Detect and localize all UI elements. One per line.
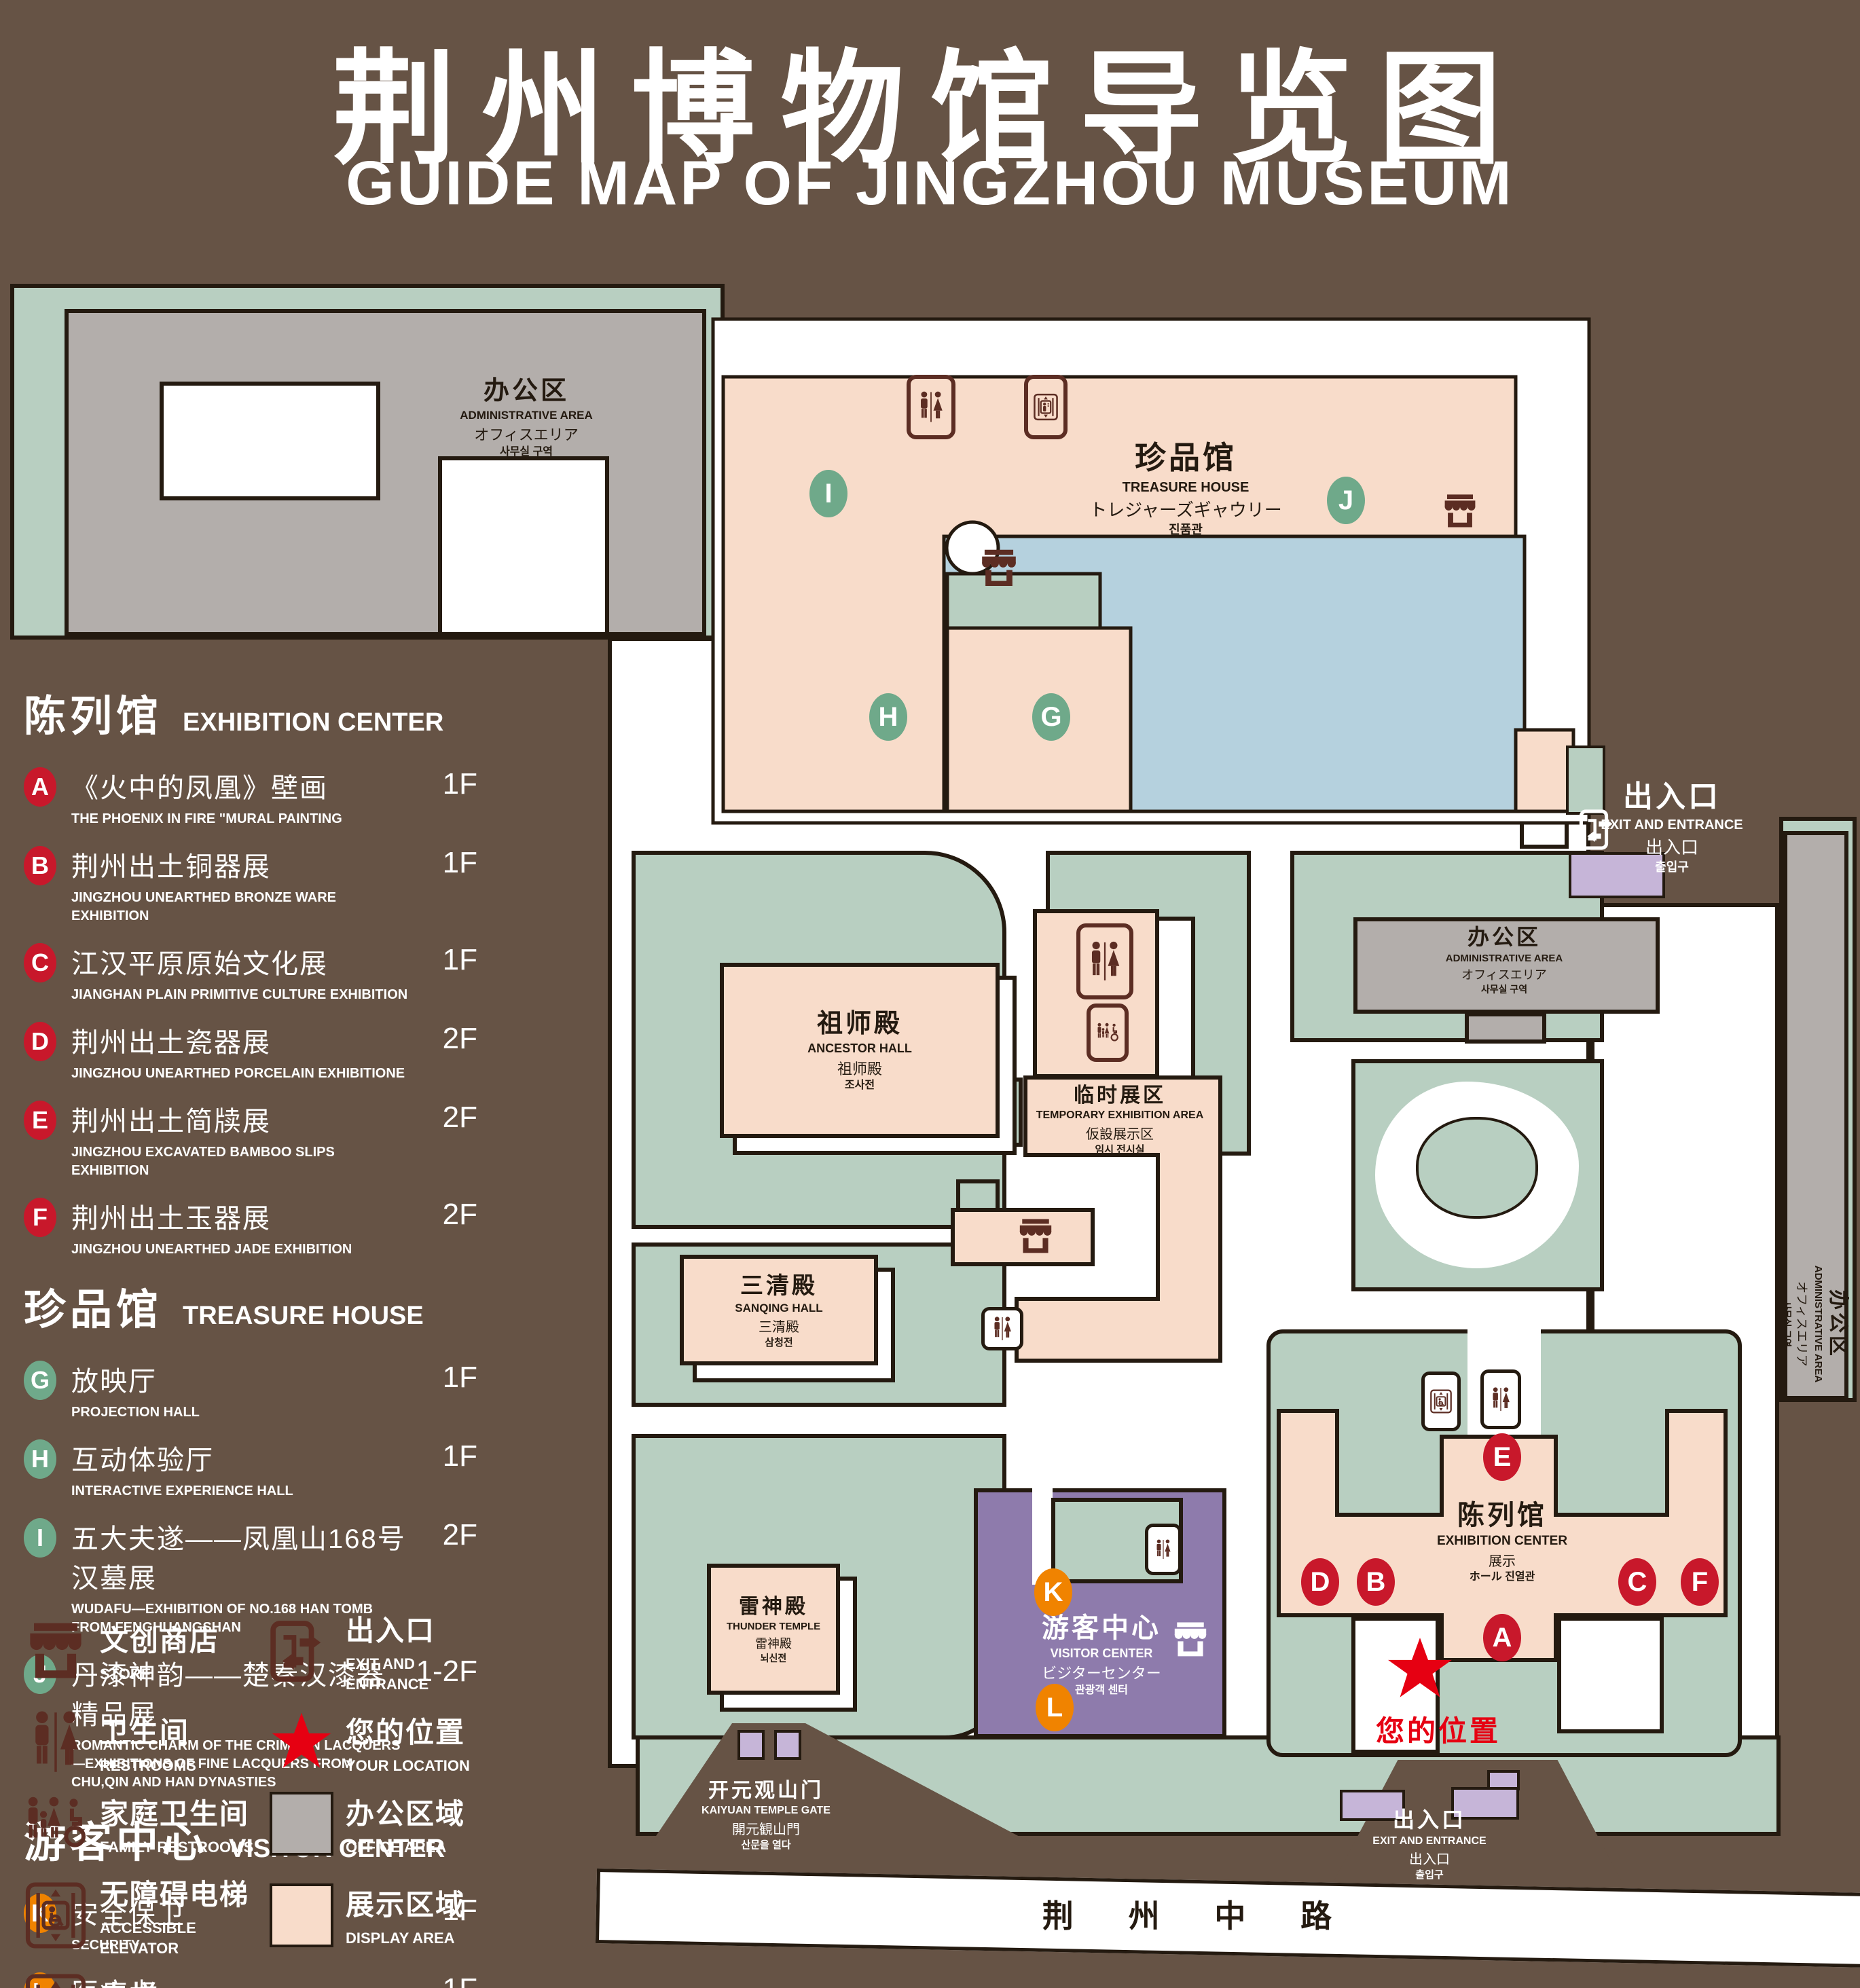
store-icon (1441, 489, 1479, 534)
admin-building-mid-tab (1465, 1012, 1546, 1044)
map-marker-G: G (1032, 693, 1070, 741)
map-marker-J: J (1327, 477, 1365, 524)
legend-icon-label: 卫生间RESTROOMS (100, 1710, 270, 1776)
floor-label: 1F (443, 1439, 477, 1473)
legend-item-E: E荆州出土简牍展JINGZHOU EXCAVATED BAMBOO SLIPS … (24, 1099, 477, 1180)
temporary-area-label: 临时展区TEMPORARY EXHIBITION AREA 仮設展示区임시 전시… (1015, 1082, 1225, 1156)
legend-icon-label: 展示区域DISPLAY AREA (346, 1882, 486, 1949)
legend-item-C: C江汉平原原始文化展JIANGHAN PLAIN PRIMITIVE CULTU… (24, 942, 477, 1004)
courtyard (1557, 1617, 1664, 1733)
floor-label: 2F (443, 1198, 477, 1232)
floor-label: 1F (443, 767, 477, 801)
exhibition-center-label: 陈列馆EXHIBITION CENTER 展示ホール 진열관 (1400, 1498, 1604, 1584)
exit-bottom-label: 出入口EXIT AND ENTRANCE 出入口출입구 (1328, 1806, 1531, 1882)
legend-section-header: 珍品馆TREASURE HOUSE (24, 1275, 477, 1336)
ancestor-hall-label: 祖师殿ANCESTOR HALL 祖师殿조사전 (807, 1008, 912, 1093)
treasure-house-label: 珍品馆TREASURE HOUSE トレジャーズギャウリー진품관 (1067, 438, 1305, 538)
floor-label: 1F (443, 846, 477, 880)
admin-east-label-wrap: 办公区ADMINISTRATIVE AREA オフィスエリア사무실 구역 (1748, 1188, 1860, 1460)
legend-badge-H: H (24, 1439, 56, 1479)
legend-icon-label: 家庭卫生间FAMILY RESTROOMS (100, 1791, 270, 1858)
floor-label: 1F (443, 1361, 477, 1395)
swatch-display (270, 1883, 333, 1947)
legend-icon-label: 无障碍电梯ACCESSIBLE ELEVATOR (100, 1872, 270, 1958)
garden-island (1416, 1117, 1538, 1219)
treasure-house-complex (706, 309, 1596, 825)
page-subtitle: GUIDE MAP OF JINGZHOU MUSEUM (0, 148, 1860, 219)
legend-badge-G: G (24, 1361, 56, 1400)
gate-pillar (737, 1730, 765, 1760)
accessible-icon (24, 1882, 88, 1949)
family-restrooms-icon (1087, 1004, 1129, 1062)
map-marker-K: K (1034, 1568, 1072, 1616)
map-marker-E: E (1483, 1433, 1521, 1481)
restrooms-icon (907, 375, 955, 439)
sanqing-hall-label: 三清殿SANQING HALL 三清殿삼청전 (735, 1271, 822, 1350)
floor-label: 2F (443, 1101, 477, 1135)
thunder-temple: 雷神殿THUNDER TEMPLE 雷神殿뇌신전 (707, 1564, 840, 1695)
road-name: 荆 州 中 路 (988, 1892, 1409, 1936)
location-star-icon (1385, 1635, 1455, 1704)
star-icon (270, 1709, 333, 1775)
courtyard (438, 456, 609, 636)
legend-badge-F: F (24, 1198, 56, 1237)
legend-icon-label: 办公区域OFFICE AREA (346, 1791, 486, 1858)
legend-item-A: A《火中的凤凰》壁画THE PHOENIX IN FIRE "MURAL PAI… (24, 766, 477, 828)
map-marker-D: D (1301, 1558, 1339, 1606)
map-marker-A: A (1483, 1614, 1521, 1661)
swatch-office (270, 1792, 333, 1856)
map-marker-I: I (809, 470, 847, 517)
ancestor-hall: 祖师殿ANCESTOR HALL 祖师殿조사전 (720, 963, 1000, 1138)
restrooms-icon (1480, 1369, 1521, 1429)
restrooms-icon (981, 1307, 1023, 1350)
floor-label: 2F (443, 1022, 477, 1056)
legend-item-B: B荆州出土铜器展JINGZHOU UNEARTHED BRONZE WARE E… (24, 845, 477, 925)
elevator-icon (24, 1974, 88, 1988)
elevator-icon (1024, 375, 1068, 439)
family-icon (24, 1790, 88, 1857)
legend-icon-label: 您的位置YOUR LOCATION (346, 1710, 486, 1776)
legend-badge-E: E (24, 1101, 56, 1140)
store-icon (978, 540, 1020, 597)
sanqing-hall: 三清殿SANQING HALL 三清殿삼청전 (680, 1255, 878, 1365)
your-location-label: 您的位置 (1343, 1708, 1533, 1750)
admin-top-left-label: 办公区ADMINISTRATIVE AREA オフィスエリア사무실 구역 (390, 375, 662, 460)
legend-item-G: G放映厅PROJECTION HALL1F (24, 1359, 477, 1422)
map-marker-C: C (1618, 1558, 1656, 1606)
thunder-temple-label: 雷神殿THUNDER TEMPLE 雷神殿뇌신전 (727, 1594, 820, 1664)
gate-pillar (774, 1730, 801, 1760)
legend-icon-grid: 文创商店STORE出入口EXIT AND ENTRANCE卫生间RESTROOM… (24, 1608, 486, 1988)
kaiyuan-gate-label: 开元观山门KAIYUAN TEMPLE GATE 開元観山門산문을 열다 (664, 1778, 868, 1852)
legend-icon-label: 文创商店STORE (100, 1618, 270, 1685)
map-marker-B: B (1357, 1558, 1395, 1606)
courtyard (160, 382, 380, 500)
legend-badge-A: A (24, 767, 56, 807)
admin-east-label: 办公区ADMINISTRATIVE AREA オフィスエリア사무실 구역 (1781, 1266, 1851, 1383)
legend-badge-C: C (24, 943, 56, 982)
restrooms-icon (24, 1709, 88, 1775)
legend-item-D: D荆州出土瓷器展JINGZHOU UNEARTHED PORCELAIN EXH… (24, 1020, 477, 1083)
legend-icon-label: 出入口EXIT AND ENTRANCE (346, 1608, 486, 1694)
store-icon (1016, 1215, 1055, 1257)
legend-badge-B: B (24, 846, 56, 885)
map-marker-L: L (1036, 1684, 1074, 1731)
legend-section-header: 陈列馆EXHIBITION CENTER (24, 682, 477, 743)
store-icon (24, 1618, 88, 1685)
legend-badge-D: D (24, 1022, 56, 1061)
store-icon (1171, 1613, 1210, 1666)
exit-icon (270, 1618, 333, 1685)
exit-right-label: 出入口EXIT AND ENTRANCE 出入口출입구 (1590, 777, 1753, 875)
legend-badge-I: I (24, 1518, 56, 1558)
guide-map-poster: 荆州博物馆导览图 GUIDE MAP OF JINGZHOU MUSEUM 陈列… (0, 0, 1860, 1988)
map-marker-H: H (869, 693, 907, 741)
accessible-elevator-icon (1421, 1372, 1461, 1431)
floor-label: 2F (443, 1518, 477, 1552)
admin-mid-label: 办公区ADMINISTRATIVE AREA オフィスエリア사무실 구역 (1385, 923, 1623, 996)
legend-item-F: F荆州出土玉器展JINGZHOU UNEARTHED JADE EXHIBITI… (24, 1196, 477, 1259)
legend-icon-label: 电梯Elevator (100, 1974, 270, 1988)
legend-item-H: H互动体验厅INTERACTIVE EXPERIENCE HALL1F (24, 1438, 477, 1501)
floor-label: 1F (443, 943, 477, 977)
map-marker-F: F (1681, 1558, 1719, 1606)
restrooms-icon (1076, 923, 1133, 999)
restrooms-icon (1145, 1524, 1182, 1575)
